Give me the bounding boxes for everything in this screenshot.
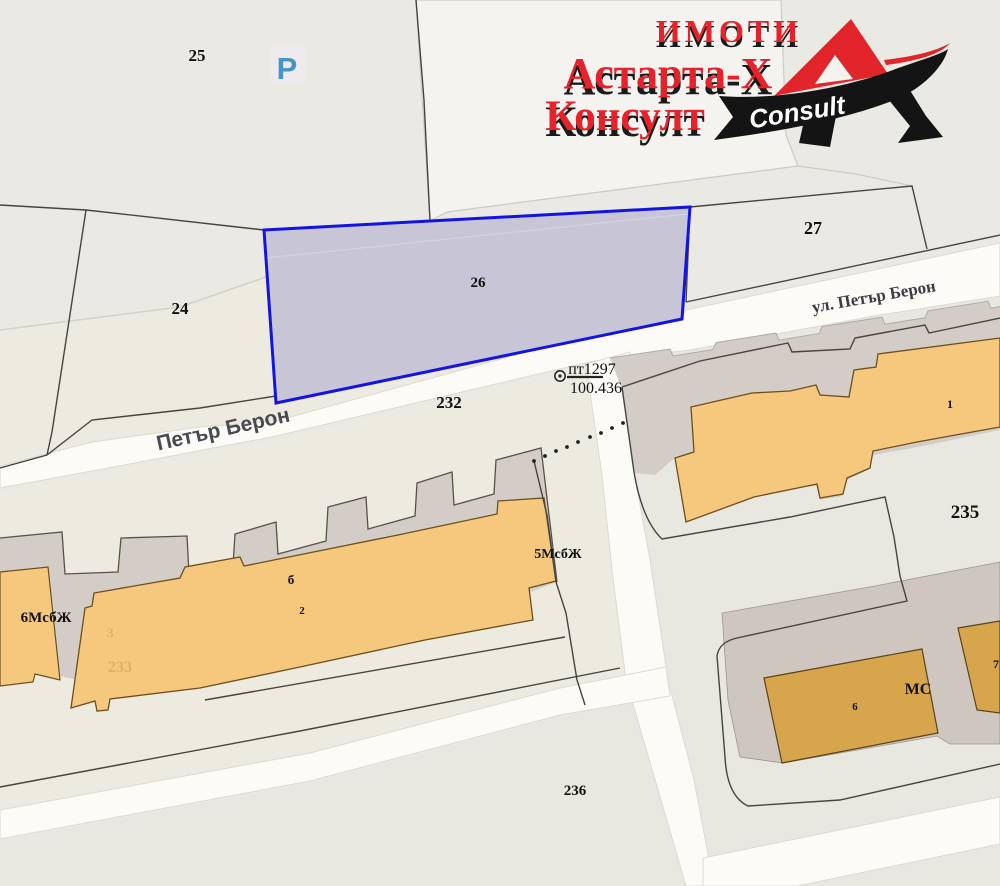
svg-text:ИМОТИ: ИМОТИ — [656, 13, 802, 49]
svg-text:25: 25 — [189, 46, 206, 65]
svg-text:Астарта-Х: Астарта-Х — [564, 49, 773, 98]
svg-text:5МсбЖ: 5МсбЖ — [534, 547, 582, 562]
svg-text:P: P — [277, 51, 298, 86]
svg-text:100.436: 100.436 — [570, 380, 622, 397]
svg-text:27: 27 — [804, 218, 822, 238]
svg-text:З: З — [107, 625, 114, 640]
svg-text:233: 233 — [108, 659, 132, 676]
svg-text:235: 235 — [951, 502, 980, 523]
svg-text:7: 7 — [993, 657, 999, 671]
svg-text:236: 236 — [564, 783, 587, 799]
svg-text:1: 1 — [947, 397, 953, 411]
svg-text:2: 2 — [299, 605, 305, 617]
svg-text:Консулт: Консулт — [545, 93, 705, 140]
svg-text:24: 24 — [172, 299, 190, 318]
svg-text:пт1297: пт1297 — [568, 361, 616, 378]
svg-text:б: б — [288, 572, 295, 587]
svg-text:232: 232 — [436, 393, 462, 412]
svg-text:МС: МС — [905, 681, 932, 698]
svg-text:6: 6 — [852, 701, 858, 713]
svg-text:26: 26 — [471, 275, 487, 291]
svg-text:6МсбЖ: 6МсбЖ — [21, 610, 72, 626]
